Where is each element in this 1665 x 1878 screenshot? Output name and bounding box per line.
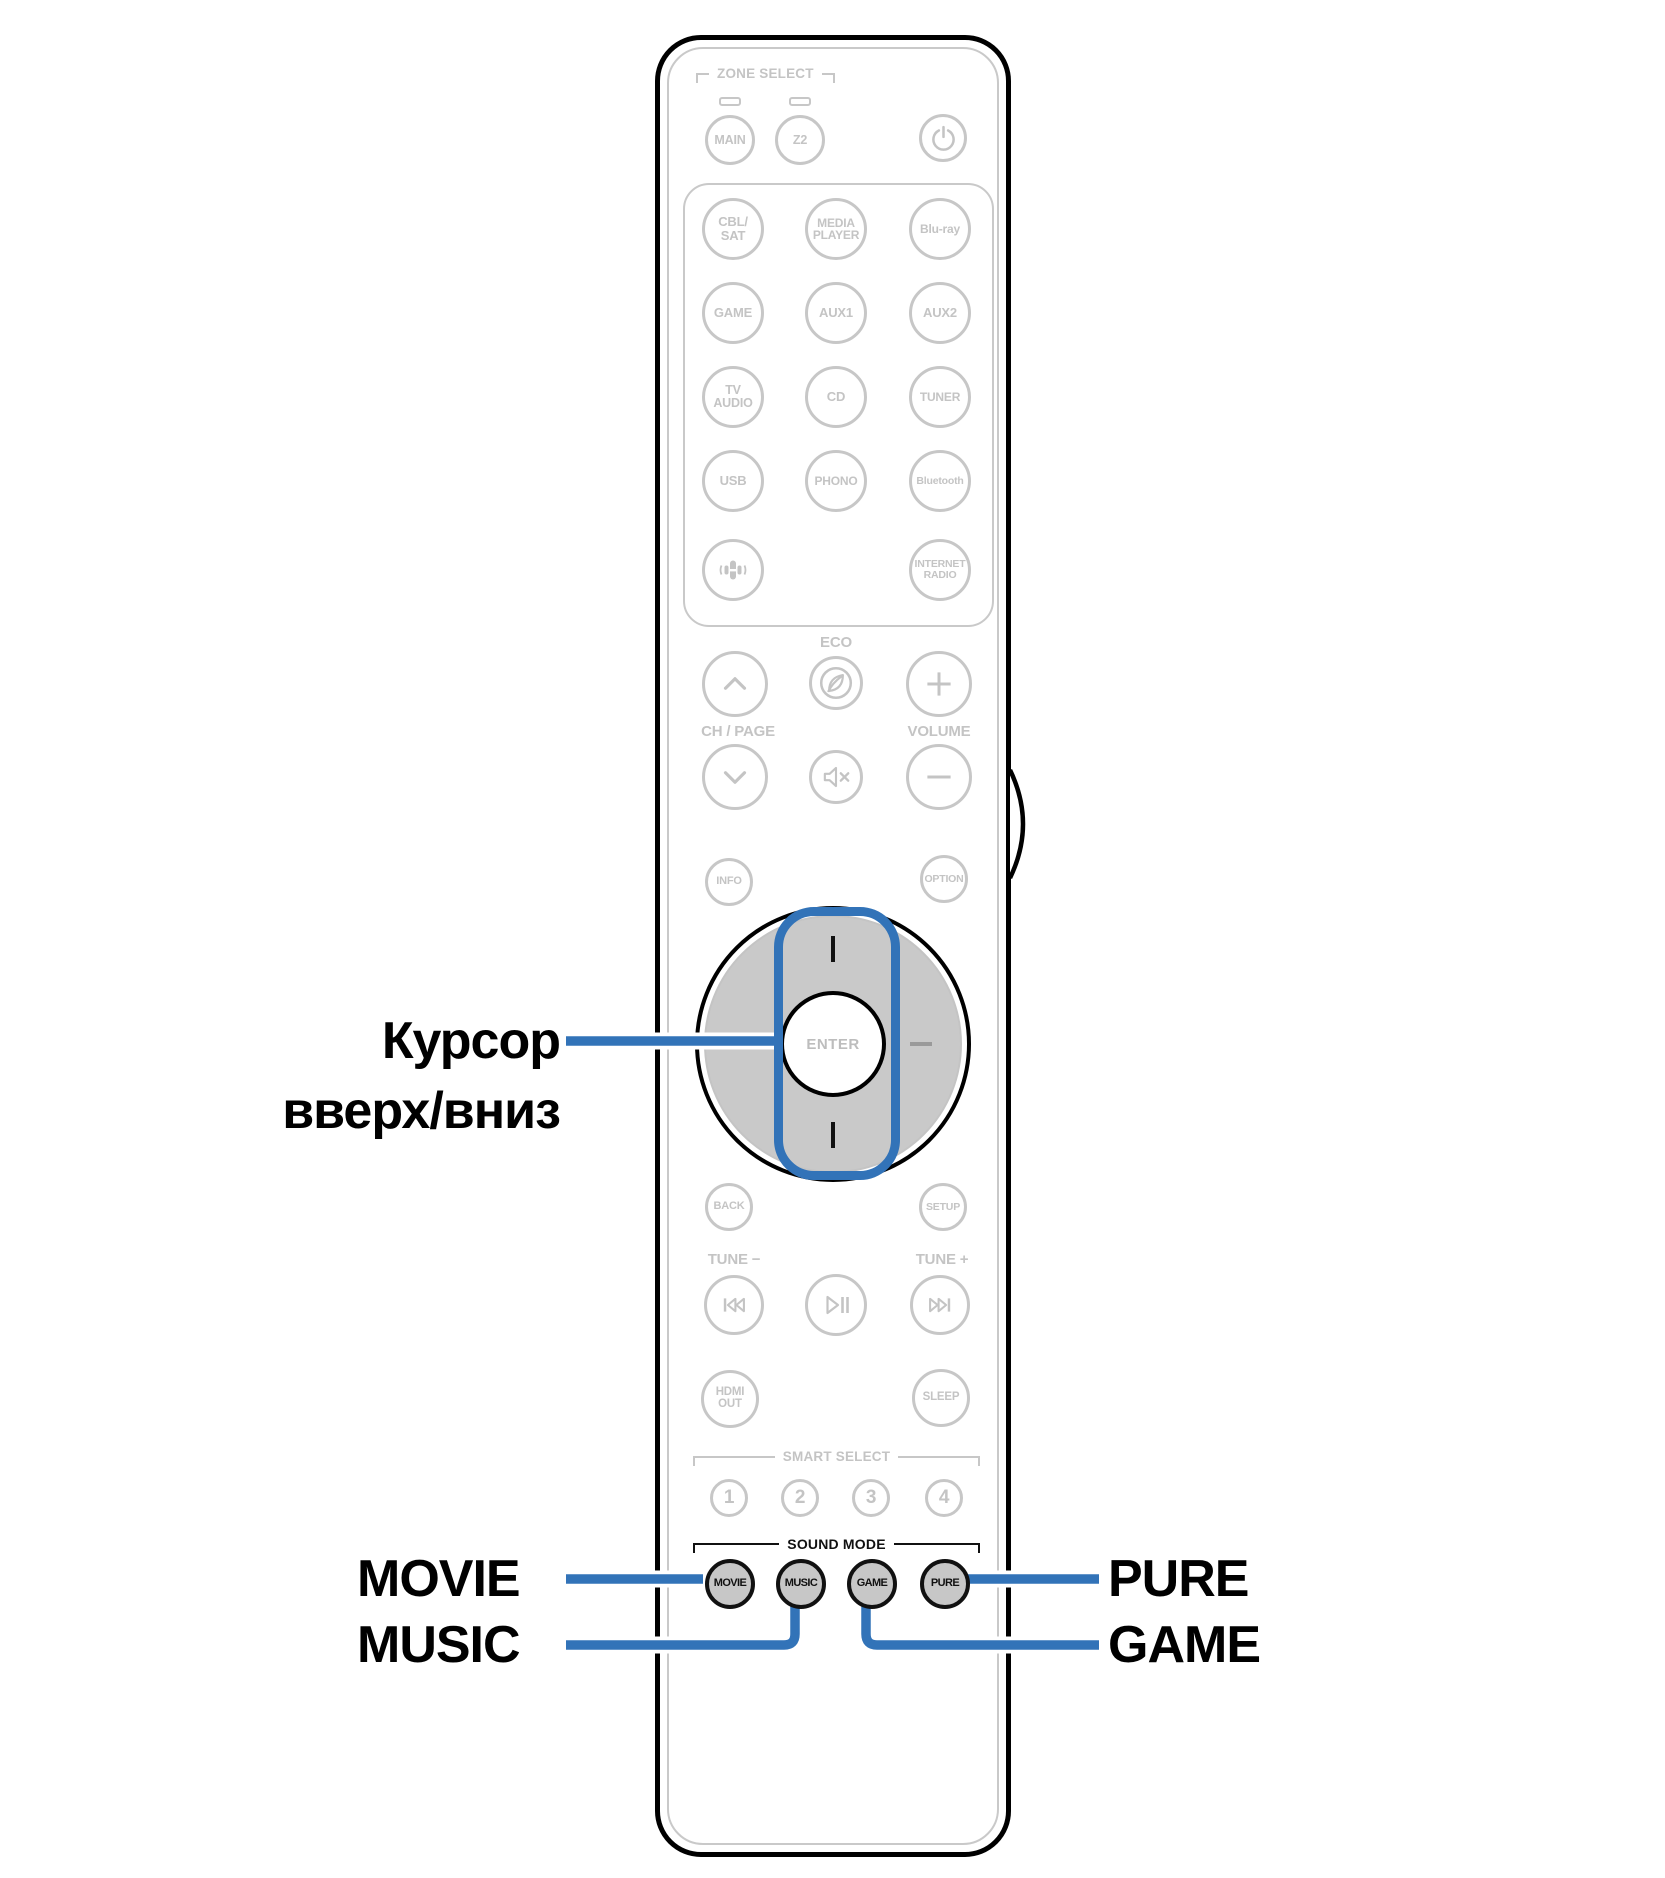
play-pause-button[interactable] bbox=[805, 1274, 867, 1336]
smart-select-2-button[interactable]: 2 bbox=[781, 1479, 819, 1517]
smart-select-1-label: 1 bbox=[724, 1488, 734, 1508]
cursor-right-mark bbox=[910, 1042, 932, 1046]
volume-up-button[interactable] bbox=[906, 651, 972, 717]
source-label: AUX1 bbox=[819, 306, 853, 320]
info-button[interactable]: INFO bbox=[705, 858, 753, 906]
volume-down-button[interactable] bbox=[906, 744, 972, 810]
chevron-up-icon bbox=[716, 665, 754, 703]
source-button-media-player[interactable]: MEDIA PLAYER bbox=[805, 198, 867, 260]
source-label: RADIO bbox=[924, 570, 957, 581]
cursor-callout-line2: вверх/вниз bbox=[150, 1076, 560, 1146]
skip-forward-button[interactable] bbox=[910, 1275, 970, 1335]
bracket-line-right bbox=[898, 1456, 980, 1466]
source-label: CBL/ bbox=[718, 215, 748, 229]
option-button[interactable]: OPTION bbox=[920, 855, 968, 903]
source-button-tuner[interactable]: TUNER bbox=[909, 366, 971, 428]
pure-button[interactable]: PURE bbox=[920, 1559, 970, 1609]
smart-select-3-label: 3 bbox=[866, 1488, 876, 1508]
smart-select-1-button[interactable]: 1 bbox=[710, 1479, 748, 1517]
tune-plus-label: TUNE + bbox=[882, 1251, 1002, 1268]
eco-leaf-icon bbox=[817, 664, 855, 702]
source-label: USB bbox=[720, 474, 747, 488]
source-button-cbl-sat[interactable]: CBL/ SAT bbox=[702, 198, 764, 260]
source-button-usb[interactable]: USB bbox=[702, 450, 764, 512]
sound-mode-title: SOUND MODE bbox=[779, 1536, 893, 1552]
volume-label: VOLUME bbox=[879, 723, 999, 740]
source-button-aux1[interactable]: AUX1 bbox=[805, 282, 867, 344]
source-label: PHONO bbox=[814, 475, 857, 487]
source-label: AUX2 bbox=[923, 306, 957, 320]
movie-button-label: MOVIE bbox=[714, 1578, 746, 1589]
source-label: AUDIO bbox=[713, 397, 752, 410]
main-zone-button[interactable]: MAIN bbox=[705, 115, 755, 165]
zone2-led-indicator bbox=[789, 97, 811, 106]
info-label: INFO bbox=[716, 876, 741, 887]
source-label: PLAYER bbox=[813, 229, 859, 241]
music-button-label: MUSIC bbox=[785, 1578, 817, 1589]
remote-control-body: ZONE SELECT MAIN Z2 CBL/ SAT MEDIA bbox=[655, 35, 1011, 1857]
plus-icon bbox=[920, 665, 958, 703]
source-label: GAME bbox=[714, 306, 752, 320]
skip-forward-icon bbox=[923, 1288, 957, 1322]
music-button[interactable]: MUSIC bbox=[776, 1559, 826, 1609]
source-button-game[interactable]: GAME bbox=[702, 282, 764, 344]
zone2-label: Z2 bbox=[793, 134, 807, 147]
speaker-voice-icon bbox=[715, 552, 751, 588]
source-button-bluray[interactable]: Blu-ray bbox=[909, 198, 971, 260]
zone2-button[interactable]: Z2 bbox=[775, 115, 825, 165]
minus-icon bbox=[920, 758, 958, 796]
source-label: CD bbox=[827, 390, 845, 404]
source-button-internet-radio[interactable]: INTERNET RADIO bbox=[909, 539, 971, 601]
power-icon bbox=[930, 125, 957, 152]
sleep-button[interactable]: SLEEP bbox=[912, 1369, 970, 1427]
smart-select-header: SMART SELECT bbox=[693, 1449, 980, 1467]
music-callout-label: MUSIC bbox=[357, 1617, 520, 1673]
movie-button[interactable]: MOVIE bbox=[705, 1559, 755, 1609]
side-grip-bump bbox=[1008, 767, 1036, 881]
smart-select-4-label: 4 bbox=[939, 1488, 949, 1508]
channel-down-button[interactable] bbox=[702, 744, 768, 810]
source-label: Blu-ray bbox=[920, 223, 960, 235]
game-button-label: GAME bbox=[857, 1578, 888, 1589]
power-button[interactable] bbox=[919, 114, 967, 162]
voice-speaker-button[interactable] bbox=[702, 539, 764, 601]
bracket-line-left bbox=[693, 1456, 775, 1466]
chevron-down-icon bbox=[716, 758, 754, 796]
bracket-line-right bbox=[894, 1543, 980, 1553]
source-button-aux2[interactable]: AUX2 bbox=[909, 282, 971, 344]
channel-up-button[interactable] bbox=[702, 651, 768, 717]
main-zone-label: MAIN bbox=[714, 134, 745, 147]
cursor-updown-highlight bbox=[774, 907, 900, 1180]
bracket-right bbox=[822, 73, 835, 83]
game-callout-label: GAME bbox=[1108, 1617, 1260, 1673]
mute-icon bbox=[819, 760, 853, 794]
back-button[interactable]: BACK bbox=[705, 1183, 753, 1231]
ch-page-label: CH / PAGE bbox=[678, 723, 798, 740]
play-pause-icon bbox=[818, 1287, 854, 1323]
smart-select-4-button[interactable]: 4 bbox=[925, 1479, 963, 1517]
smart-select-title: SMART SELECT bbox=[775, 1449, 898, 1465]
game-button[interactable]: GAME bbox=[847, 1559, 897, 1609]
source-label: TUNER bbox=[920, 391, 960, 403]
hdmi-out-label: OUT bbox=[718, 1399, 742, 1411]
bracket-line-left bbox=[693, 1543, 779, 1553]
eco-button[interactable] bbox=[809, 656, 863, 710]
cursor-callout-line1: Курсор bbox=[150, 1006, 560, 1076]
main-zone-led-indicator bbox=[719, 97, 741, 106]
pure-button-label: PURE bbox=[931, 1578, 959, 1589]
source-button-cd[interactable]: CD bbox=[805, 366, 867, 428]
source-button-bluetooth[interactable]: Bluetooth bbox=[909, 450, 971, 512]
tune-minus-label: TUNE − bbox=[674, 1251, 794, 1268]
eco-label: ECO bbox=[776, 634, 896, 651]
option-label: OPTION bbox=[924, 874, 963, 885]
smart-select-2-label: 2 bbox=[795, 1488, 805, 1508]
hdmi-out-button[interactable]: HDMI OUT bbox=[701, 1370, 759, 1428]
sleep-label: SLEEP bbox=[923, 1392, 960, 1404]
zone-select-header: ZONE SELECT bbox=[696, 66, 842, 84]
source-label: Bluetooth bbox=[916, 476, 963, 487]
setup-label: SETUP bbox=[926, 1202, 960, 1213]
setup-button[interactable]: SETUP bbox=[919, 1183, 967, 1231]
movie-callout-label: MOVIE bbox=[357, 1551, 520, 1607]
zone-select-title: ZONE SELECT bbox=[709, 66, 822, 82]
sound-mode-header: SOUND MODE bbox=[693, 1536, 980, 1554]
back-label: BACK bbox=[714, 1201, 745, 1212]
smart-select-3-button[interactable]: 3 bbox=[852, 1479, 890, 1517]
pure-callout-label: PURE bbox=[1108, 1551, 1248, 1607]
manual-diagram: ZONE SELECT MAIN Z2 CBL/ SAT MEDIA bbox=[0, 0, 1665, 1878]
source-label: SAT bbox=[721, 229, 745, 243]
mute-button[interactable] bbox=[809, 750, 863, 804]
skip-back-button[interactable] bbox=[704, 1275, 764, 1335]
source-button-phono[interactable]: PHONO bbox=[805, 450, 867, 512]
source-button-tv-audio[interactable]: TV AUDIO bbox=[702, 366, 764, 428]
skip-back-icon bbox=[717, 1288, 751, 1322]
bracket-left bbox=[696, 73, 709, 83]
cursor-updown-callout-label: Курсор вверх/вниз bbox=[150, 1006, 560, 1146]
